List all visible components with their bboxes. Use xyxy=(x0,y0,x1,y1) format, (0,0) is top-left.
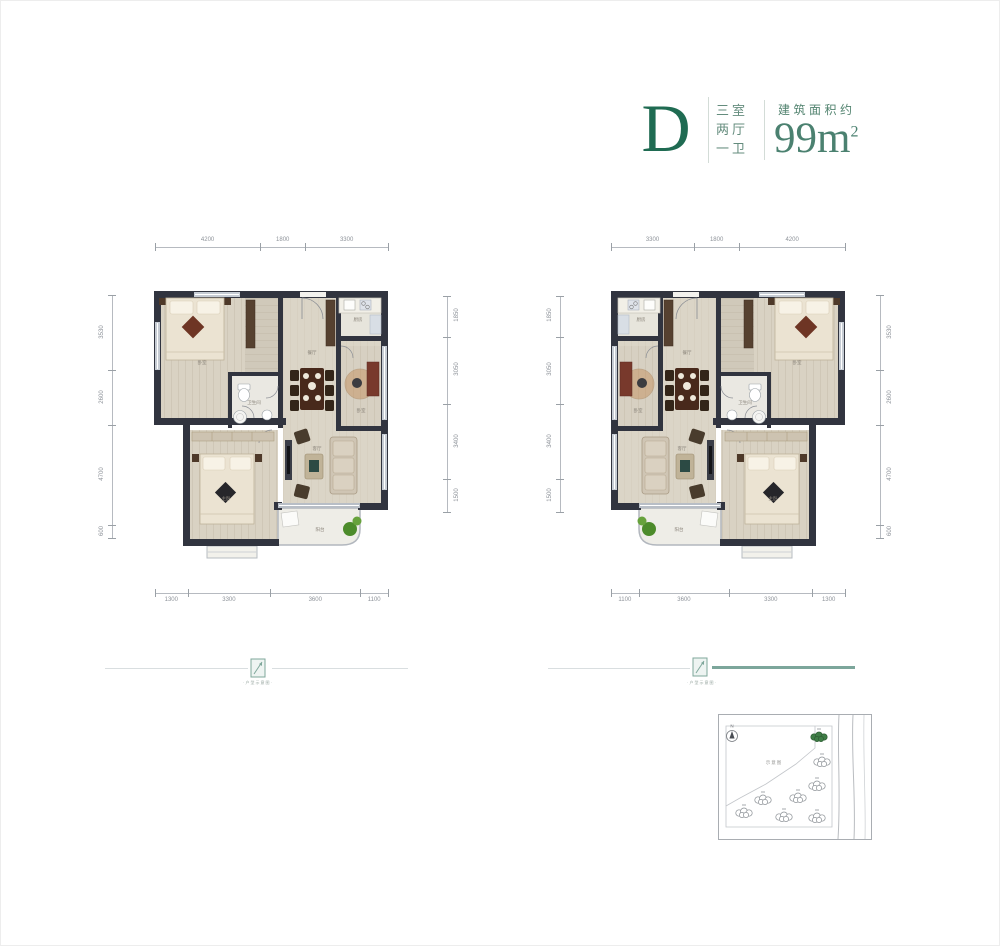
dimension-tick xyxy=(108,370,116,371)
dimension-tick xyxy=(155,243,156,251)
room-label: 主卧 xyxy=(222,495,231,502)
dimension-label: 2600 xyxy=(99,379,105,415)
room-label: 阳台 xyxy=(675,526,684,533)
dimension-label: 4200 xyxy=(155,237,260,243)
dimension-tick xyxy=(188,589,189,597)
dimension-tick xyxy=(443,296,451,297)
dimension-tick xyxy=(388,589,389,597)
header-divider-1 xyxy=(708,97,709,163)
dimension-tick xyxy=(360,589,361,597)
dimension-label: 1800 xyxy=(260,237,305,243)
dimension-label: 4700 xyxy=(887,456,893,492)
floorplan-right: 卧室厨房餐厅卧室卫生间客厅主卧阳台 xyxy=(611,288,845,562)
dimension-line xyxy=(112,295,113,538)
dimension-tick xyxy=(611,243,612,251)
dimension-label: 3050 xyxy=(547,351,553,387)
dimension-label: 1500 xyxy=(454,477,460,513)
dimension-tick xyxy=(108,295,116,296)
plan-caption-right: ·户型示意图· xyxy=(657,680,747,686)
dimension-label: 3400 xyxy=(454,423,460,459)
area-value: 99m2 xyxy=(774,114,894,164)
dimension-tick xyxy=(260,243,261,251)
dimension-tick xyxy=(876,538,884,539)
dimension-tick xyxy=(556,337,564,338)
room-label: 餐厅 xyxy=(308,349,317,356)
dimension-label: 3300 xyxy=(729,597,812,603)
dimension-tick xyxy=(729,589,730,597)
dimension-tick xyxy=(270,589,271,597)
plan-caption-left: ·户型示意图· xyxy=(213,680,303,686)
site-map: N 示意图 xyxy=(718,714,872,840)
room-label: 厨房 xyxy=(637,316,646,323)
dimension-tick xyxy=(443,479,451,480)
dimension-line xyxy=(155,247,388,248)
dimension-tick xyxy=(845,589,846,597)
dimension-tick xyxy=(388,243,389,251)
dimension-label: 2600 xyxy=(887,379,893,415)
dimension-label: 3300 xyxy=(305,237,388,243)
dimension-tick xyxy=(556,296,564,297)
area-number: 99m xyxy=(774,115,850,162)
dimension-label: 1850 xyxy=(454,297,460,333)
dimension-label: 1850 xyxy=(547,297,553,333)
dimension-tick xyxy=(876,295,884,296)
dimension-label: 1300 xyxy=(812,597,845,603)
room-label: 卧室 xyxy=(634,407,643,414)
dimension-tick xyxy=(108,525,116,526)
room-label: 卫生间 xyxy=(738,399,752,406)
dimension-label: 1500 xyxy=(547,477,553,513)
room-label: 客厅 xyxy=(678,445,687,452)
dimension-line xyxy=(611,247,845,248)
room-label: 餐厅 xyxy=(683,349,692,356)
dimension-tick xyxy=(556,512,564,513)
dimension-label: 4200 xyxy=(739,237,845,243)
room-label: 主卧 xyxy=(769,495,778,502)
rule-right-a xyxy=(548,668,690,669)
floorplan-page: D 三室 两厅 一卫 建筑面积约 99m2 xyxy=(0,0,1000,946)
dimension-tick xyxy=(556,479,564,480)
spec-line-1: 三室 xyxy=(716,101,750,120)
dimension-label: 3400 xyxy=(547,423,553,459)
dimension-label: 3530 xyxy=(887,314,893,350)
room-label: 阳台 xyxy=(316,526,325,533)
spec-line-3: 一卫 xyxy=(716,139,750,158)
room-label: 厨房 xyxy=(354,316,363,323)
dimension-tick xyxy=(845,243,846,251)
dimension-label: 3300 xyxy=(188,597,271,603)
unit-letter: D xyxy=(626,88,706,170)
dimension-label: 1100 xyxy=(611,597,639,603)
dimension-tick xyxy=(694,243,695,251)
dimension-tick xyxy=(305,243,306,251)
room-label: 卧室 xyxy=(198,359,207,366)
dimension-label: 3600 xyxy=(270,597,360,603)
floorplan-left: 卧室厨房餐厅卧室卫生间客厅主卧阳台 xyxy=(154,288,388,562)
dimension-label: 600 xyxy=(887,513,893,549)
dimension-label: 3300 xyxy=(611,237,694,243)
room-label: 卧室 xyxy=(357,407,366,414)
dimension-tick xyxy=(108,538,116,539)
dimension-tick xyxy=(155,589,156,597)
dimension-label: 600 xyxy=(99,513,105,549)
svg-text:N: N xyxy=(730,724,733,729)
dimension-tick xyxy=(443,404,451,405)
site-area-label: 示意图 xyxy=(766,759,783,766)
dimension-tick xyxy=(108,425,116,426)
dimension-tick xyxy=(812,589,813,597)
dimension-label: 3600 xyxy=(639,597,730,603)
dimension-label: 1100 xyxy=(360,597,388,603)
dimension-tick xyxy=(876,525,884,526)
dimension-label: 1300 xyxy=(155,597,188,603)
dimension-tick xyxy=(556,404,564,405)
dimension-line xyxy=(611,593,845,594)
area-exponent: 2 xyxy=(850,124,858,141)
rule-left-b xyxy=(272,668,408,669)
rule-right-b xyxy=(712,666,855,669)
dimension-label: 3050 xyxy=(454,351,460,387)
dimension-tick xyxy=(739,243,740,251)
dimension-label: 1800 xyxy=(694,237,739,243)
dimension-label: 3530 xyxy=(99,314,105,350)
room-label: 客厅 xyxy=(313,445,322,452)
compass-icon xyxy=(250,658,266,678)
dimension-tick xyxy=(876,425,884,426)
dimension-tick xyxy=(443,512,451,513)
header-divider-2 xyxy=(764,100,765,160)
dimension-tick xyxy=(443,337,451,338)
dimension-label: 4700 xyxy=(99,456,105,492)
dimension-line xyxy=(155,593,388,594)
rule-left-a xyxy=(105,668,248,669)
unit-spec: 三室 两厅 一卫 xyxy=(716,101,750,158)
compass-icon xyxy=(692,657,708,677)
room-label: 卫生间 xyxy=(247,399,261,406)
dimension-tick xyxy=(876,370,884,371)
spec-line-2: 两厅 xyxy=(716,120,750,139)
dimension-line xyxy=(880,295,881,538)
dimension-tick xyxy=(611,589,612,597)
dimension-tick xyxy=(639,589,640,597)
room-label: 卧室 xyxy=(793,359,802,366)
